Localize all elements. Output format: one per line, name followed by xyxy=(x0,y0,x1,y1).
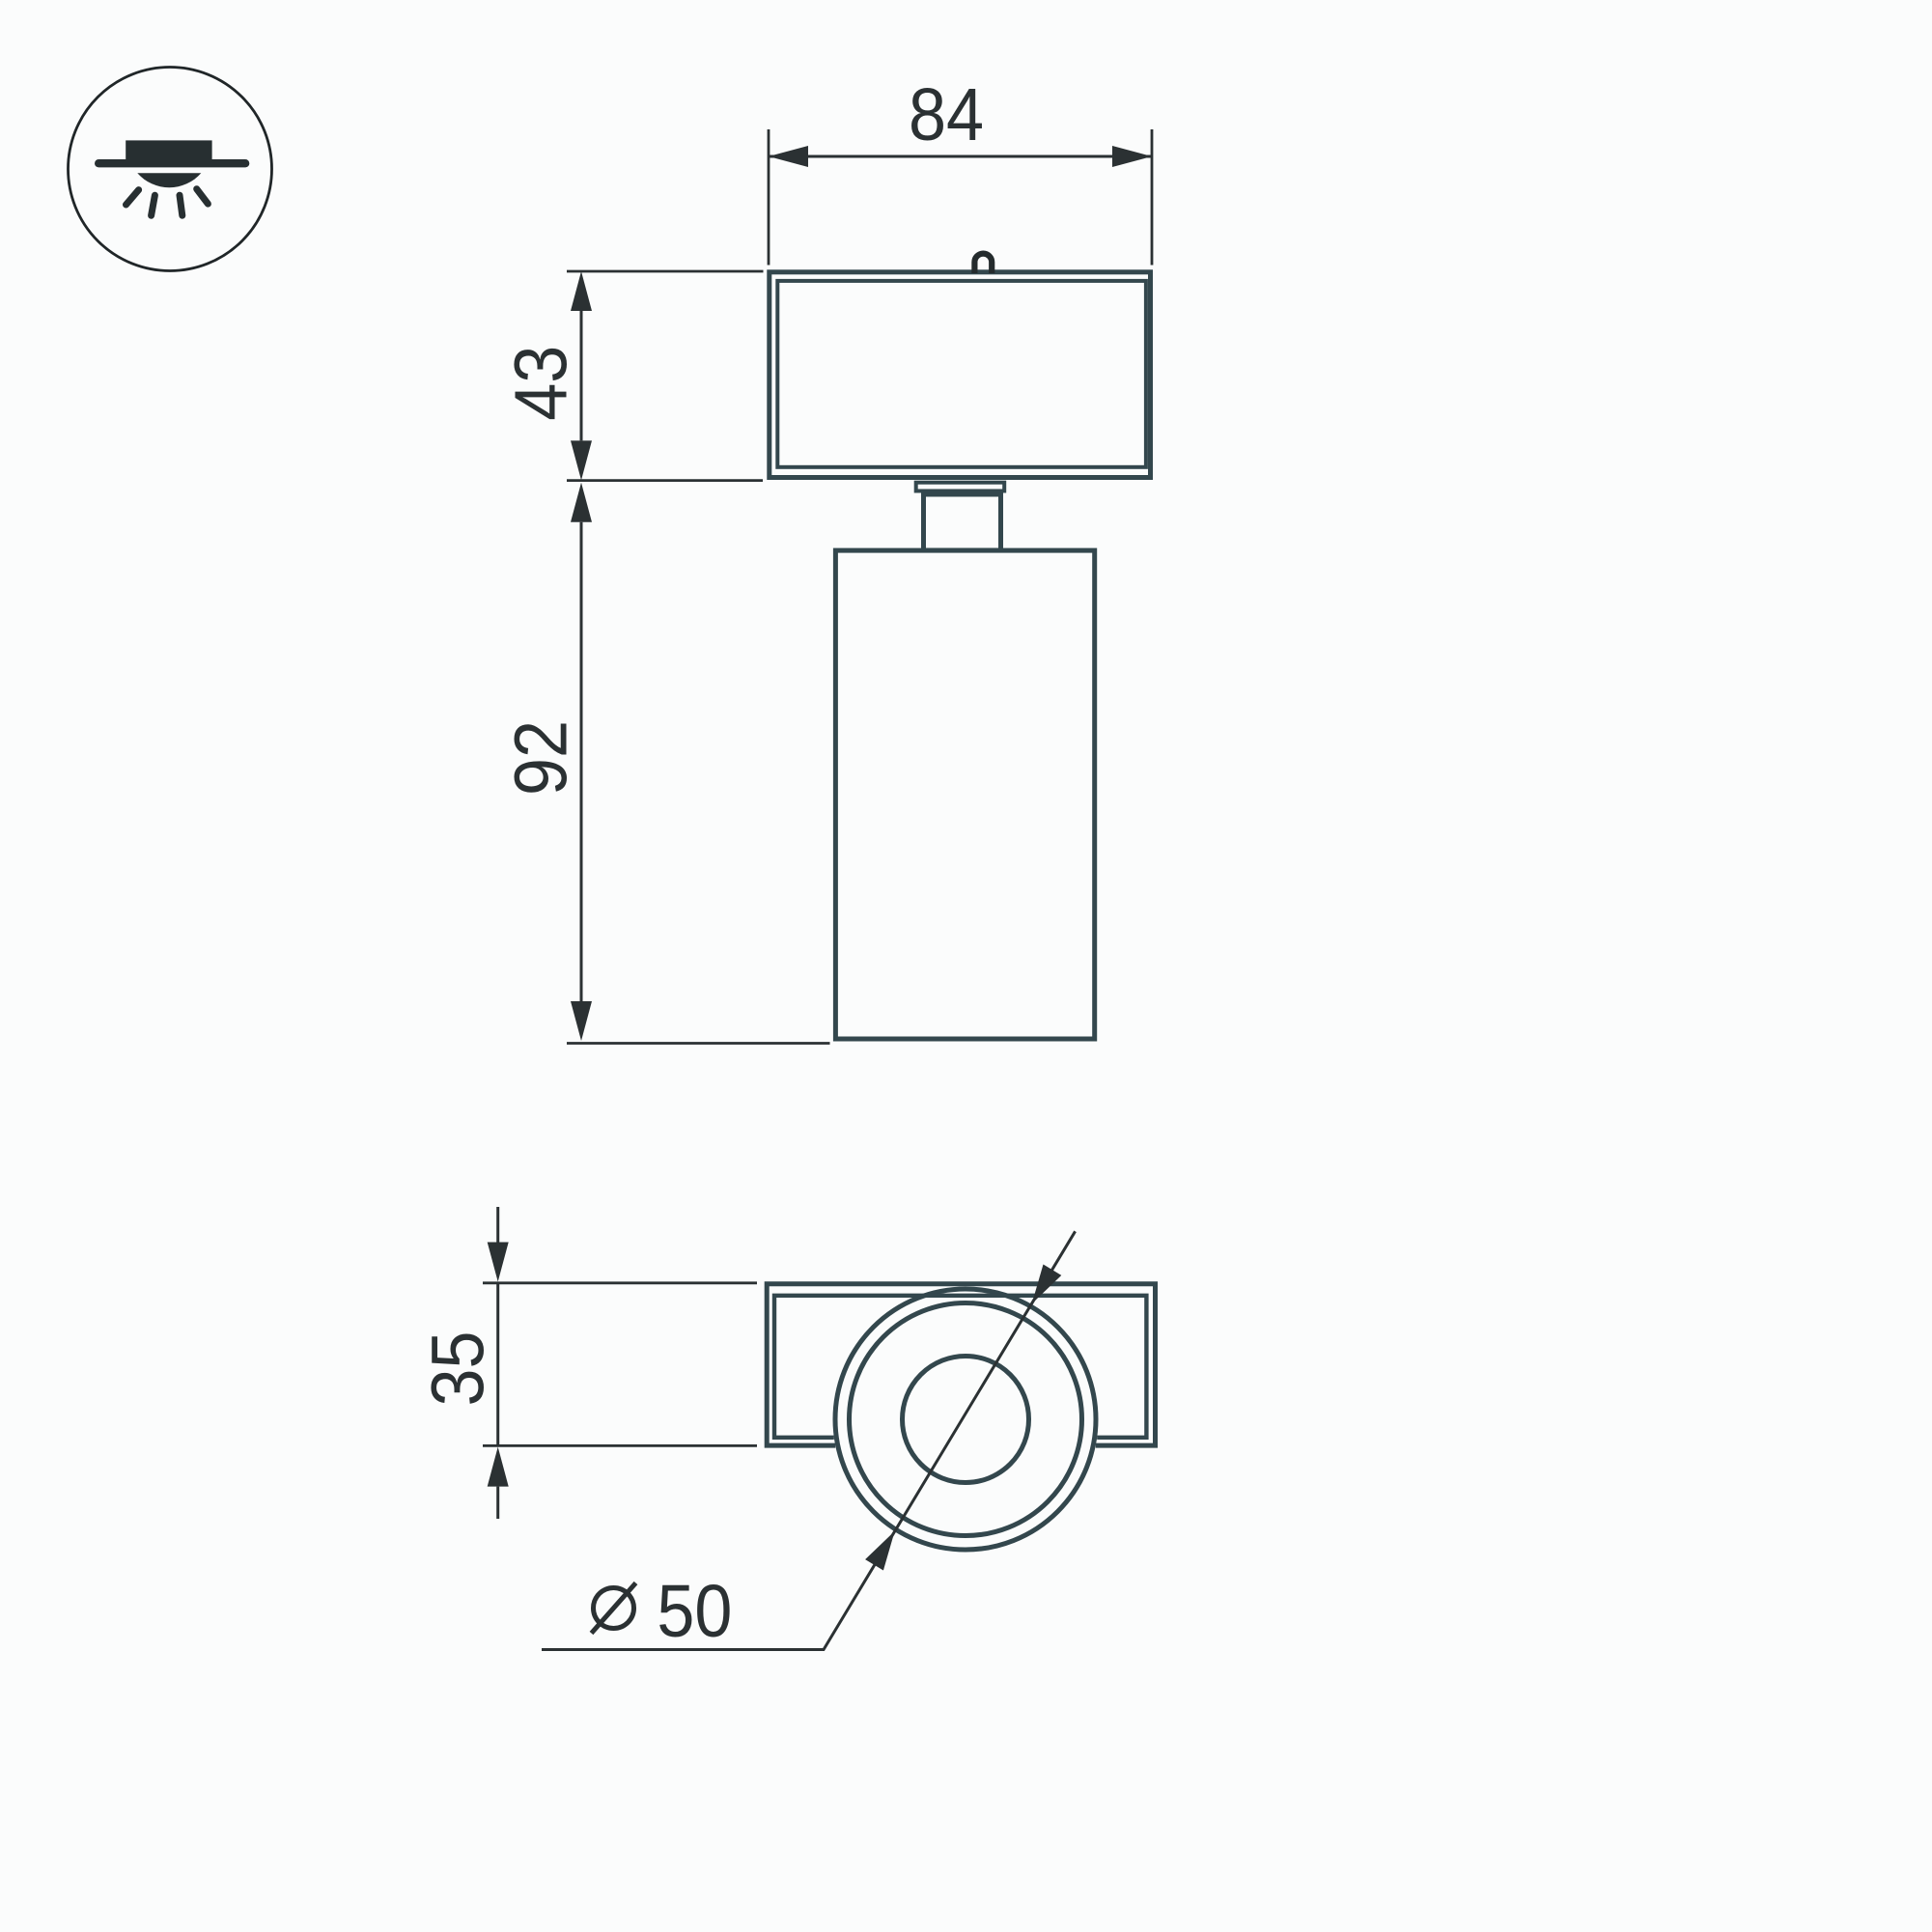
svg-text:84: 84 xyxy=(909,73,984,156)
svg-text:92: 92 xyxy=(500,720,583,796)
svg-text:43: 43 xyxy=(500,346,583,421)
svg-text:35: 35 xyxy=(417,1331,500,1407)
svg-text:50: 50 xyxy=(657,1570,732,1653)
